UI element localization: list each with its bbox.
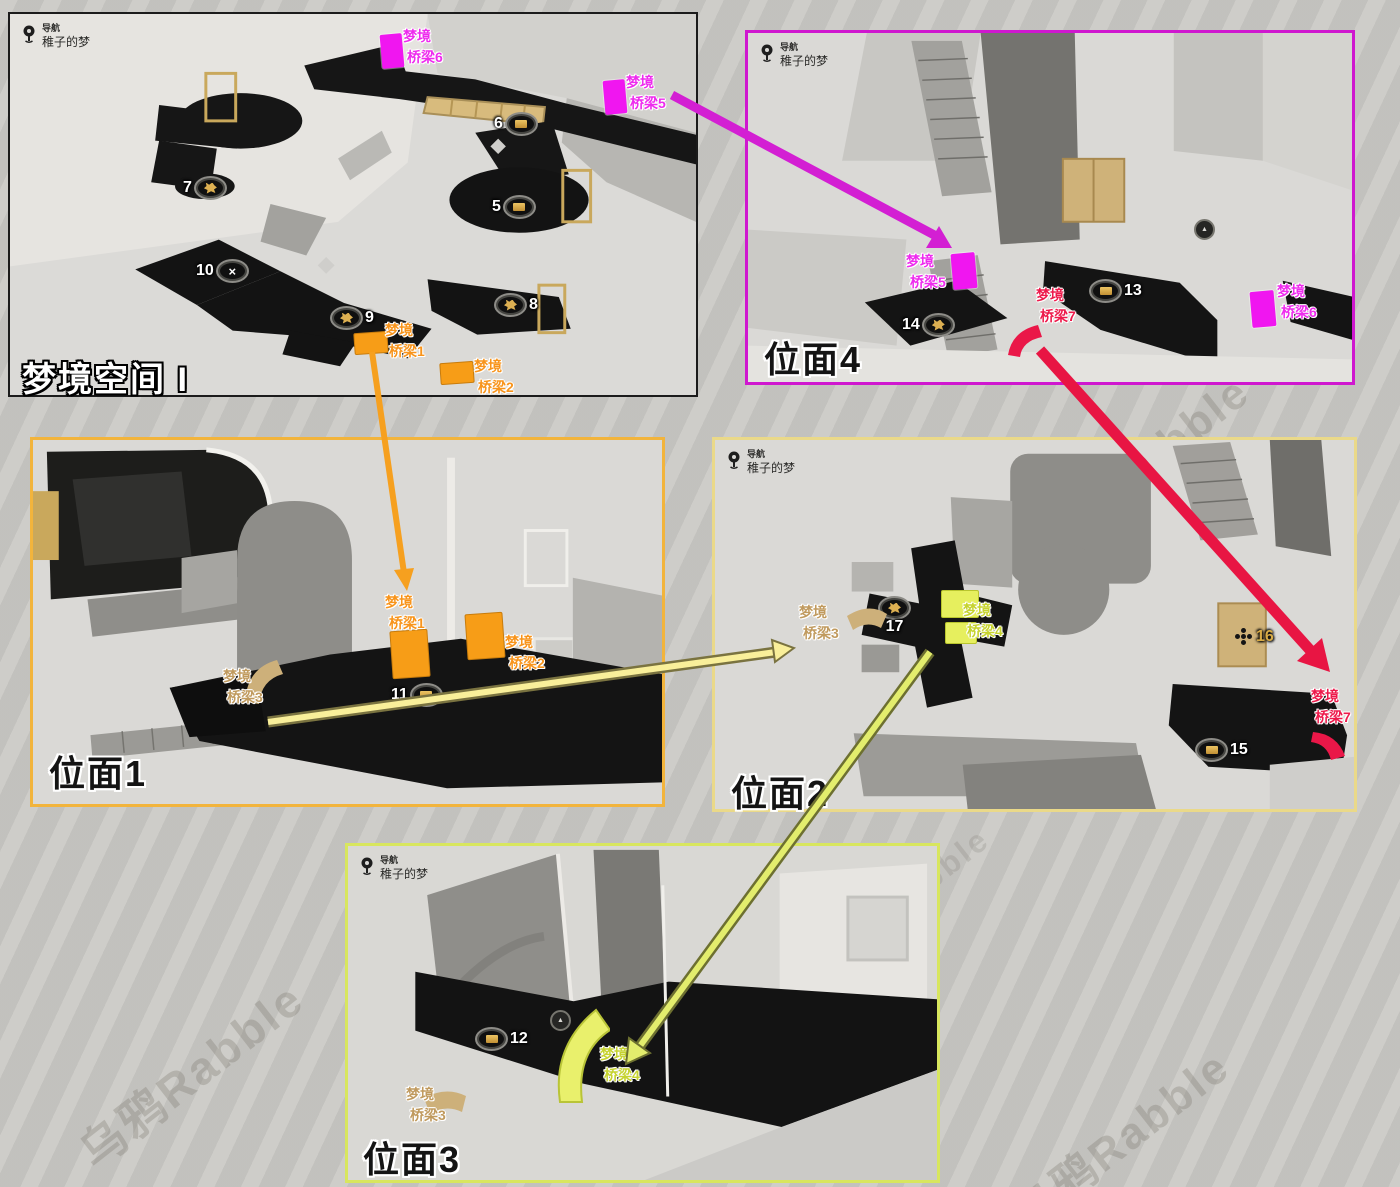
bridge-icon-7: [1006, 323, 1044, 359]
monster-icon: [332, 308, 361, 328]
marker-number: 11: [391, 687, 408, 703]
panel-plane2: 导航 稚子的梦 17 梦境 桥梁3 梦境 桥梁4 16 15: [712, 437, 1357, 812]
location-pin-icon: [760, 43, 774, 63]
bridge-label-4: 梦境 桥梁4: [600, 1044, 640, 1086]
panel-title-plane1: 位面1: [49, 745, 147, 797]
bridge-icon-5: [603, 79, 628, 115]
monster-icon: [196, 178, 225, 198]
map-marker-10: 10 ×: [196, 261, 247, 281]
nav-place: 稚子的梦: [780, 54, 828, 68]
marker-number: 15: [1230, 742, 1248, 758]
map-marker-12: 12: [477, 1029, 528, 1049]
panel-title-plane4: 位面4: [764, 331, 862, 383]
map-geometry-plane3: [348, 846, 937, 1180]
nav-title: 导航: [780, 43, 828, 52]
mon-badge-icon: [412, 685, 441, 705]
marker-number: 8: [529, 297, 538, 313]
guide-collage: 乌鸦Rabble 乌鸦Rabble 乌鸦Rabble 乌鸦Rabble: [0, 0, 1400, 1187]
map-marker-11: 11: [391, 685, 441, 705]
teleport-marker: ▲: [1194, 219, 1215, 240]
map-geometry-plane4: [748, 33, 1352, 382]
bridge-label-6: 梦境 桥梁6: [403, 26, 443, 68]
nav-label: 导航 稚子的梦: [760, 43, 828, 68]
monster-icon: [496, 295, 525, 315]
marker-number: 5: [492, 199, 501, 215]
marker-number: 9: [365, 310, 374, 326]
bridge-icon-3: [845, 596, 889, 644]
bridge-label-2: 梦境 桥梁2: [474, 356, 514, 398]
nav-label: 导航 稚子的梦: [360, 856, 428, 881]
nav-title: 导航: [747, 450, 795, 459]
mon-badge-icon: [477, 1029, 506, 1049]
map-marker-16: 16: [1235, 628, 1274, 645]
map-marker-15: 15: [1197, 740, 1248, 760]
teleport-icon: ▲: [1194, 219, 1215, 240]
bridge-label-6: 梦境 桥梁6: [1277, 281, 1317, 323]
map-marker-14: 14: [902, 315, 953, 335]
bridge-icon-2: [464, 612, 505, 661]
panel-title-dream-space: 梦境空间 I: [22, 352, 189, 401]
marker-number: 14: [902, 317, 920, 333]
nav-place: 稚子的梦: [380, 867, 428, 881]
bridge-label-1: 梦境 桥梁1: [385, 320, 425, 362]
panel-plane1: 11 梦境 桥梁1 梦境 桥梁2 梦境 桥梁3 位面1: [30, 437, 665, 807]
panel-title-plane2: 位面2: [731, 765, 829, 817]
bridge-icon-6: [1249, 290, 1276, 328]
quad-dot-icon: [1241, 634, 1246, 639]
bridge-label-7: 梦境 桥梁7: [1036, 285, 1076, 327]
watermark: 乌鸦Rabble: [63, 964, 316, 1182]
marker-number: 7: [183, 180, 192, 196]
bridge-icon-5: [950, 252, 977, 290]
location-pin-icon: [727, 450, 741, 470]
bridge-icon-6: [380, 33, 405, 69]
nav-label: 导航 稚子的梦: [22, 24, 90, 49]
bridge-icon-2: [439, 361, 474, 385]
location-pin-icon: [22, 24, 36, 44]
panel-dream-space: 导航 稚子的梦 7 10 × 9 8 5 6: [8, 12, 698, 397]
bridge-label-1: 梦境 桥梁1: [385, 592, 425, 634]
map-marker-7: 7: [183, 178, 225, 198]
monster-icon: [924, 315, 953, 335]
bridge-label-5: 梦境 桥梁5: [906, 251, 946, 293]
bridge-label-2: 梦境 桥梁2: [505, 632, 545, 674]
marker-number: 12: [510, 1031, 528, 1047]
map-marker-9: 9: [332, 308, 374, 328]
bridge-icon-1: [389, 629, 430, 680]
panel-plane3: 导航 稚子的梦 12 ▲ 梦境 桥梁4 梦境 桥梁3 位面3: [345, 843, 940, 1183]
bridge-label-5: 梦境 桥梁5: [626, 72, 666, 114]
map-marker-13: 13: [1091, 281, 1142, 301]
bridge-icon-1: [353, 331, 388, 355]
bridge-label-7: 梦境 桥梁7: [1311, 686, 1351, 728]
marker-number: 13: [1124, 283, 1142, 299]
map-marker-8: 8: [496, 295, 538, 315]
nav-place: 稚子的梦: [42, 35, 90, 49]
bridge-label-4: 梦境 桥梁4: [963, 600, 1003, 642]
x-marker-icon: ×: [218, 261, 247, 281]
mon-badge-icon: [505, 197, 534, 217]
bridge-icon-7: [1311, 726, 1349, 762]
map-marker-6: 6: [494, 114, 536, 134]
panel-plane4: 导航 稚子的梦 14 13 ▲ 梦境 桥梁5 梦境 桥梁7 梦境: [745, 30, 1355, 385]
nav-label: 导航 稚子的梦: [727, 450, 795, 475]
location-pin-icon: [360, 856, 374, 876]
marker-number: 10: [196, 263, 214, 279]
mon-badge-icon: [1197, 740, 1226, 760]
marker-number: 16: [1256, 629, 1274, 645]
marker-number: 6: [494, 116, 503, 132]
mon-badge-icon: [1091, 281, 1120, 301]
mon-badge-icon: [507, 114, 536, 134]
bridge-label-3: 梦境 桥梁3: [799, 602, 839, 644]
panel-title-plane3: 位面3: [363, 1131, 461, 1183]
nav-place: 稚子的梦: [747, 461, 795, 475]
bridge-label-3: 梦境 桥梁3: [406, 1084, 446, 1126]
nav-title: 导航: [42, 24, 90, 33]
bridge-label-3: 梦境 桥梁3: [223, 666, 263, 708]
nav-title: 导航: [380, 856, 428, 865]
watermark: 乌鸦Rabble: [998, 1032, 1241, 1187]
map-marker-5: 5: [492, 197, 534, 217]
